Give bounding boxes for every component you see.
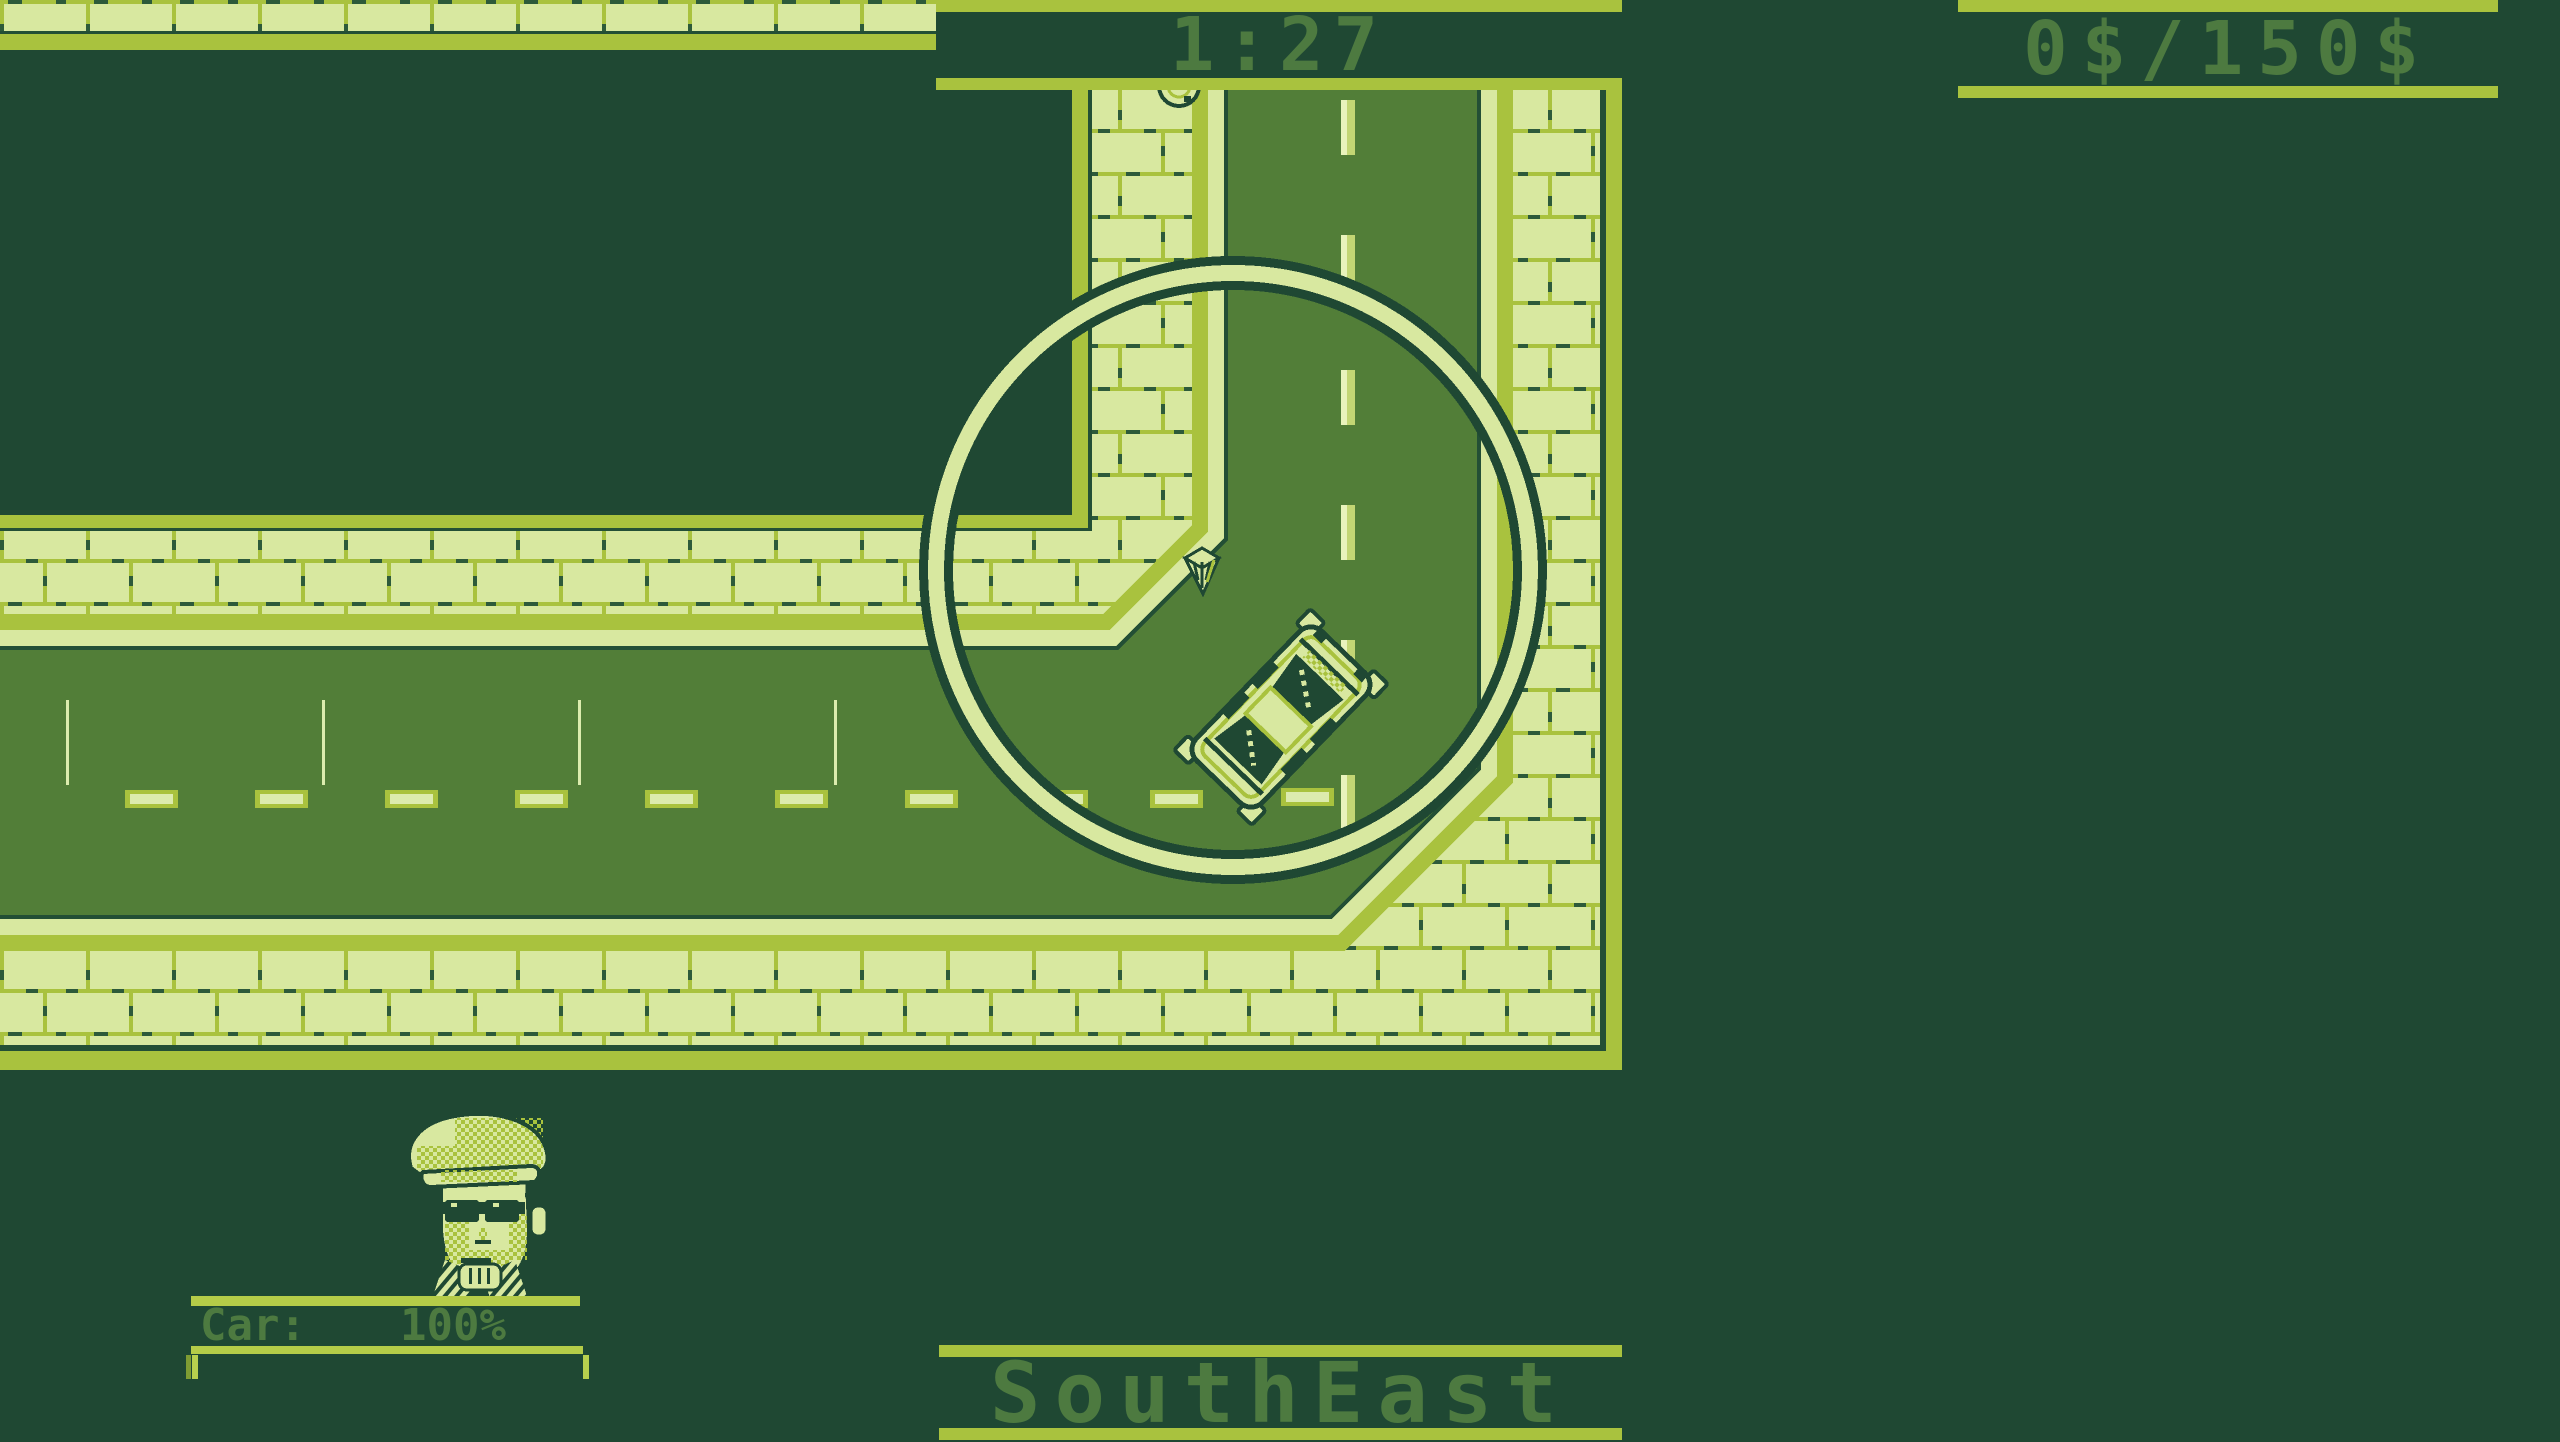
game-screen: { "hud": { "timer": { "value": "1:27" },…	[0, 0, 2560, 1440]
car-health-bar-left-tick	[192, 1355, 198, 1379]
car-health-value: 100%	[400, 1300, 506, 1351]
timer-value: 1:27	[936, 12, 1622, 78]
money-value: 0$/150$	[1958, 12, 2498, 86]
car-health-bottom-line	[191, 1346, 583, 1354]
compass-direction-bar: SouthEast	[939, 1345, 1622, 1440]
direction-value: SouthEast	[939, 1357, 1622, 1428]
timer-bar: 1:27	[936, 0, 1622, 90]
game-viewport[interactable]	[0, 0, 2560, 1440]
driver-portrait	[397, 1114, 563, 1304]
car-health-bar-left-tick-outer	[186, 1355, 191, 1379]
car-health-text: Car: 100%	[200, 1304, 506, 1346]
building	[0, 31, 1092, 531]
car-health-label: Car:	[200, 1300, 306, 1351]
car-health-panel: Car: 100%	[186, 1296, 596, 1391]
car-health-bar-right-tick	[583, 1355, 589, 1379]
money-bar: 0$/150$	[1958, 0, 2498, 98]
